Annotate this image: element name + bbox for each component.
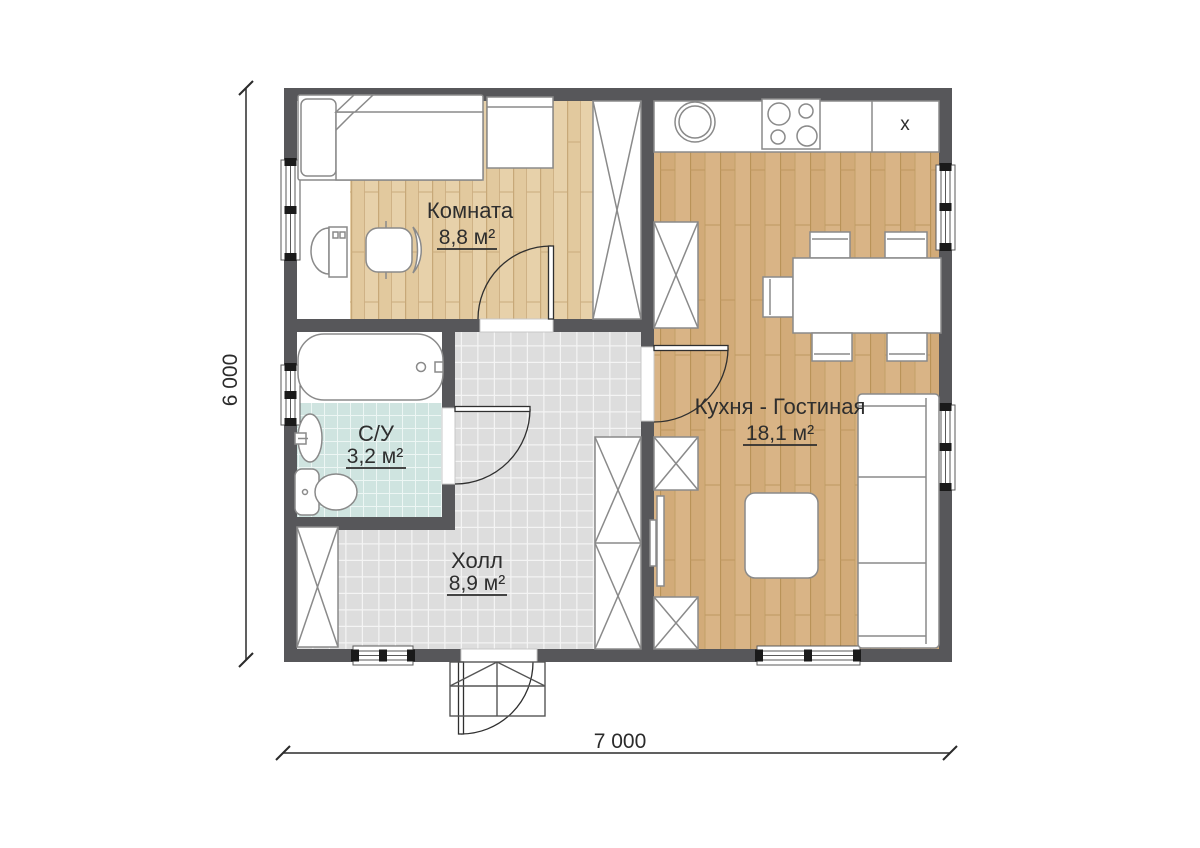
bedroom-label: Комната <box>427 198 514 223</box>
hall-wardrobe-right <box>595 437 641 649</box>
coffee-table <box>745 493 818 578</box>
dining-table <box>793 258 941 333</box>
window-kitchen-right <box>936 163 955 251</box>
floor-plan-drawing: Комната 8,8 м² С/У 3,2 м² Холл 8,9 м² Ку… <box>0 0 1200 848</box>
toilet-bowl <box>315 474 357 510</box>
wall-left-1 <box>284 88 297 160</box>
stove-icon <box>762 99 820 149</box>
hall-area: 8,9 м² <box>449 572 505 595</box>
dining-chair-3 <box>763 277 793 317</box>
wardrobe-bedroom <box>593 101 641 319</box>
opening-front-door <box>461 649 537 662</box>
kitchen-living-label: Кухня - Гостиная <box>695 394 866 419</box>
door-bathroom-leaf <box>455 407 530 412</box>
floor-plan-page: Комната 8,8 м² С/У 3,2 м² Холл 8,9 м² Ку… <box>0 0 1200 848</box>
bedroom-area: 8,8 м² <box>439 226 495 249</box>
bathroom-label: С/У <box>358 421 395 446</box>
bathtub-faucet-icon <box>435 362 443 372</box>
opening-bedroom <box>480 319 553 332</box>
kitchen-cabinet-lower <box>654 597 698 649</box>
window-bedroom-left <box>281 158 300 261</box>
kitchen-cabinet-upper <box>654 222 698 328</box>
wall-left-2 <box>284 260 297 365</box>
wall-right-1 <box>939 88 952 165</box>
kitchen-counter <box>654 99 939 152</box>
wall-right-3 <box>939 490 952 662</box>
wall-bottom-2 <box>413 649 461 662</box>
kitchen-cabinet-mid <box>654 437 698 490</box>
dining-chair-1 <box>810 232 850 258</box>
door-front-leaf <box>459 662 464 734</box>
bathtub <box>298 334 443 400</box>
bed-pillow <box>301 99 336 176</box>
wall-bottom-4 <box>860 649 952 662</box>
door-kitchen-leaf <box>654 346 728 351</box>
wall-bathroom-right-1 <box>442 332 455 408</box>
wall-bedroom-bottom-1 <box>297 319 480 332</box>
width-dimension-label: 7 000 <box>594 730 647 753</box>
bathroom-area: 3,2 м² <box>347 445 403 468</box>
dining-chair-4 <box>812 333 852 361</box>
wall-bedroom-bottom-2 <box>553 319 641 332</box>
door-front <box>459 662 534 734</box>
wall-bottom-3 <box>537 649 757 662</box>
porch-steps <box>450 662 545 716</box>
bed-blanket <box>336 112 483 180</box>
desk <box>311 227 347 277</box>
sofa <box>858 394 939 648</box>
kitchen-living-area: 18,1 м² <box>746 422 814 445</box>
bathtub-drain <box>417 363 426 372</box>
opening-kitchen <box>641 347 654 421</box>
height-dimension-label: 6 000 <box>219 354 242 407</box>
dresser <box>487 97 553 168</box>
bed <box>298 95 483 180</box>
door-bedroom-leaf <box>549 246 554 319</box>
dining-chair-2 <box>885 232 927 258</box>
dining-chair-5 <box>887 333 927 361</box>
window-hall-bottom <box>351 646 415 665</box>
hall-label: Холл <box>451 548 503 573</box>
window-bathroom-left <box>281 363 300 426</box>
opening-bathroom <box>442 408 455 484</box>
wall-left-3 <box>284 425 297 662</box>
wall-middle-upper <box>641 101 654 347</box>
window-living-bottom <box>755 646 861 665</box>
hall-wardrobe-left <box>297 527 338 647</box>
counter-mark-label: x <box>900 114 910 135</box>
